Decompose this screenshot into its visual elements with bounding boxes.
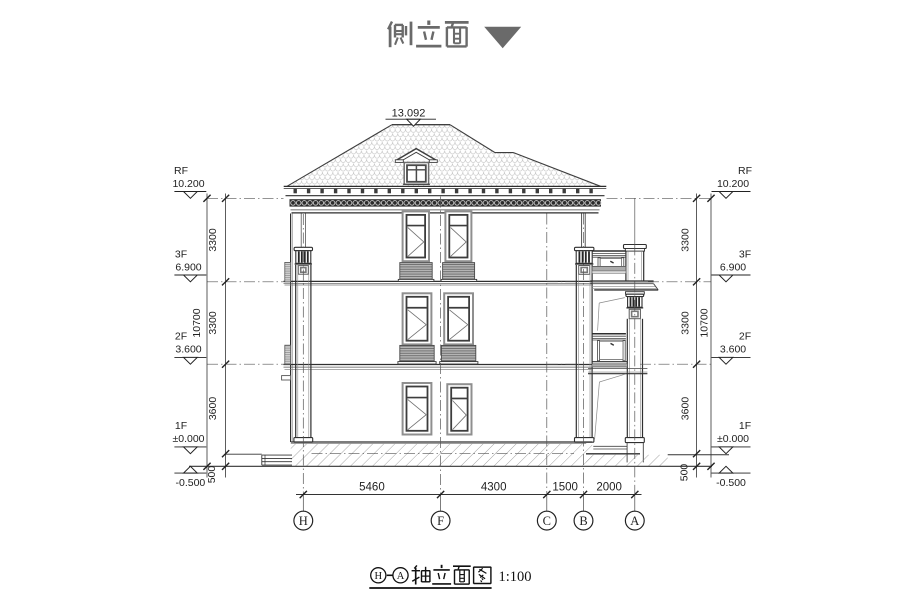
svg-text:C: C <box>543 514 551 528</box>
svg-text:F: F <box>437 514 444 528</box>
svg-text:B: B <box>579 514 587 528</box>
svg-text:-0.500: -0.500 <box>176 477 206 489</box>
svg-text:10700: 10700 <box>191 308 203 337</box>
svg-text:13.092: 13.092 <box>392 108 426 120</box>
svg-text:3600: 3600 <box>679 397 691 421</box>
svg-text:3.600: 3.600 <box>175 344 201 356</box>
svg-text:3600: 3600 <box>207 397 219 421</box>
svg-text:3.600: 3.600 <box>720 344 746 356</box>
svg-text:6.900: 6.900 <box>175 261 201 273</box>
svg-text:3300: 3300 <box>679 311 691 335</box>
svg-text:A: A <box>397 571 405 582</box>
svg-text:3300: 3300 <box>207 311 219 335</box>
svg-text:2000: 2000 <box>596 481 622 493</box>
svg-text:5460: 5460 <box>359 481 385 493</box>
svg-text:RF: RF <box>174 165 188 177</box>
svg-text:A: A <box>630 514 639 528</box>
svg-text:1500: 1500 <box>552 481 578 493</box>
svg-text:1F: 1F <box>739 420 751 432</box>
svg-text:3300: 3300 <box>207 228 219 252</box>
svg-text:500: 500 <box>678 464 690 482</box>
svg-text:RF: RF <box>738 165 752 177</box>
svg-text:4300: 4300 <box>481 481 507 493</box>
svg-text:3300: 3300 <box>679 228 691 252</box>
svg-text:±0.000: ±0.000 <box>172 433 204 445</box>
svg-text:3F: 3F <box>175 248 187 260</box>
svg-text:10.200: 10.200 <box>172 178 204 190</box>
svg-text:10.200: 10.200 <box>717 178 749 190</box>
svg-text:2F: 2F <box>739 331 751 343</box>
svg-text:10700: 10700 <box>698 308 710 337</box>
svg-text:H: H <box>375 571 383 582</box>
svg-text:3F: 3F <box>739 248 751 260</box>
svg-text:1:100: 1:100 <box>498 569 531 585</box>
svg-text:2F: 2F <box>175 331 187 343</box>
svg-text:500: 500 <box>206 466 218 484</box>
svg-text:-0.500: -0.500 <box>716 477 746 489</box>
svg-text:H: H <box>299 514 308 528</box>
svg-text:6.900: 6.900 <box>720 261 746 273</box>
svg-text:1F: 1F <box>175 420 187 432</box>
svg-text:±0.000: ±0.000 <box>717 433 749 445</box>
